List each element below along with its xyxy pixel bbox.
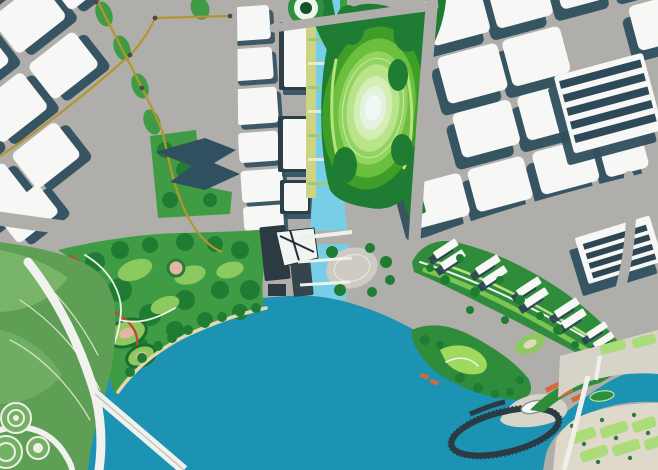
leaf-shaped-park — [0, 242, 116, 470]
masterplan-rendering — [0, 0, 658, 470]
masterplan-canvas — [0, 0, 658, 470]
